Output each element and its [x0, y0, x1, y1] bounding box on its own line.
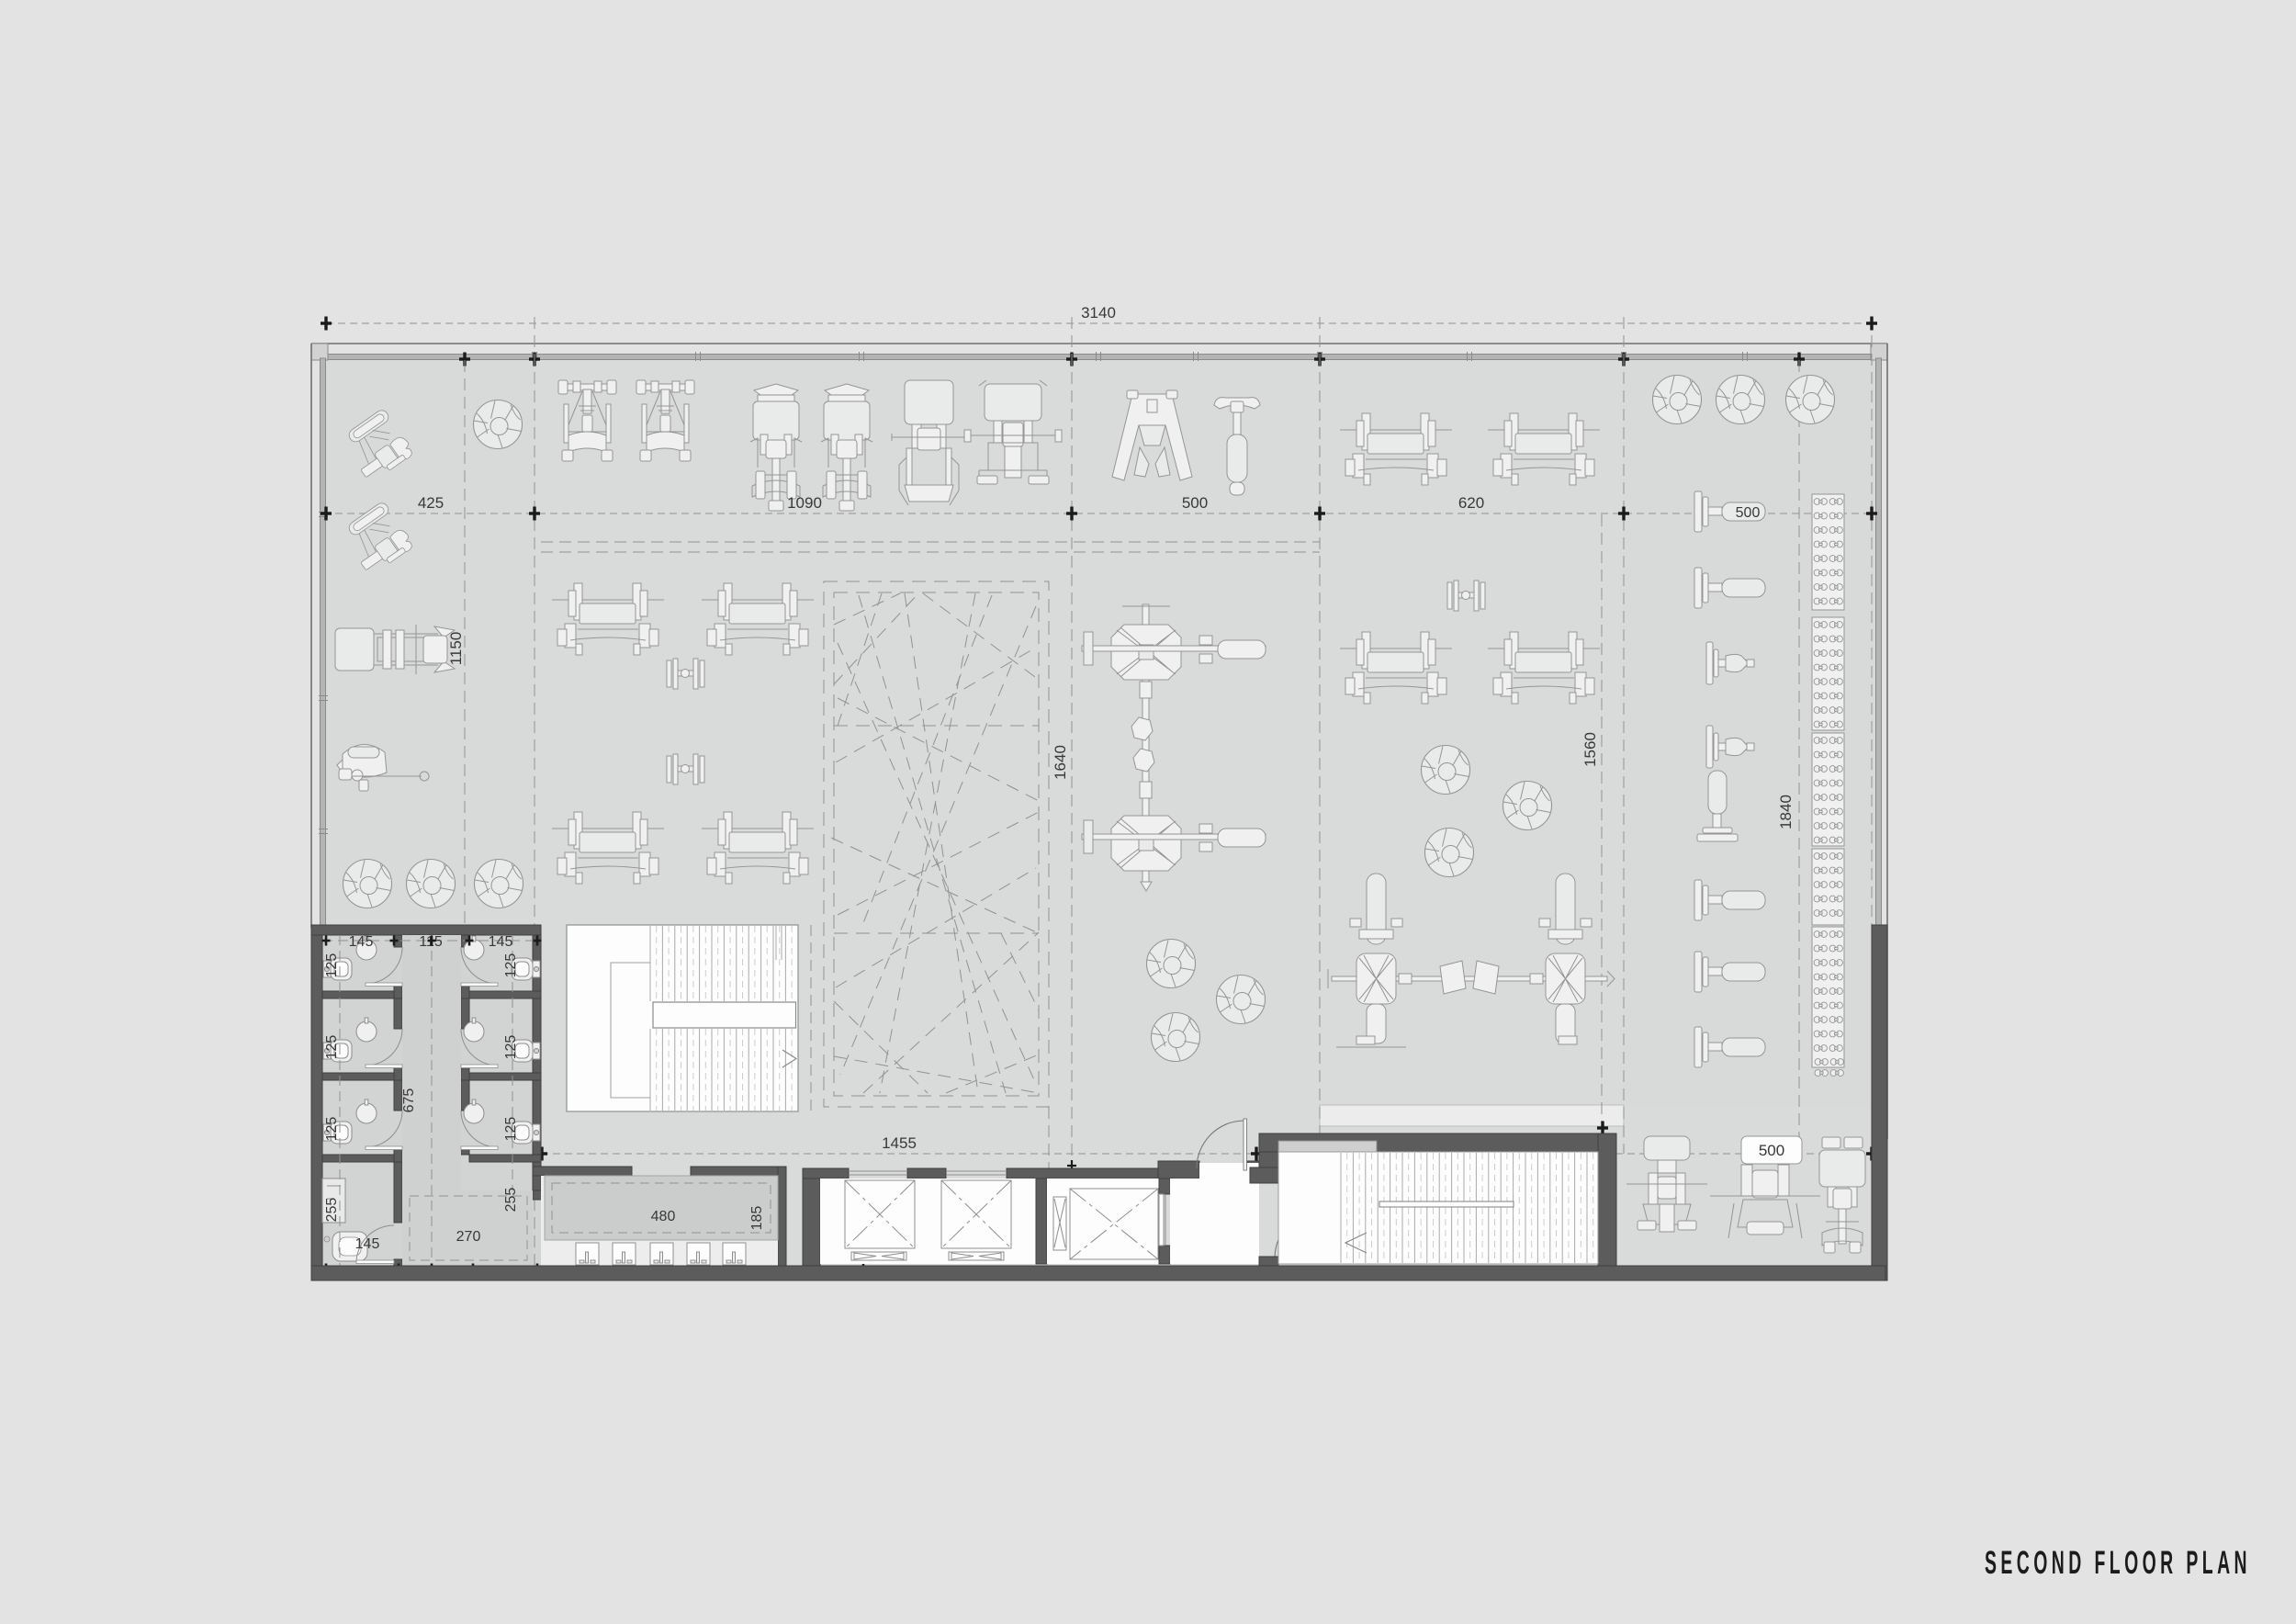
svg-text:125: 125 — [503, 1117, 519, 1142]
svg-text:125: 125 — [324, 953, 340, 978]
svg-text:1090: 1090 — [787, 494, 822, 512]
svg-text:125: 125 — [324, 1117, 340, 1142]
svg-text:1840: 1840 — [1777, 795, 1795, 829]
svg-text:185: 185 — [749, 1206, 765, 1231]
svg-text:1150: 1150 — [447, 632, 465, 666]
svg-text:145: 145 — [349, 934, 374, 950]
svg-text:1640: 1640 — [1052, 745, 1069, 780]
svg-text:425: 425 — [418, 494, 444, 512]
svg-text:500: 500 — [1736, 505, 1761, 521]
svg-text:SECOND FLOOR PLAN: SECOND FLOOR PLAN — [1985, 1545, 2251, 1581]
svg-text:145: 145 — [355, 1236, 380, 1252]
svg-text:1455: 1455 — [882, 1134, 917, 1152]
svg-text:270: 270 — [456, 1229, 481, 1245]
svg-text:255: 255 — [324, 1198, 340, 1223]
svg-text:3140: 3140 — [1081, 304, 1116, 321]
svg-text:620: 620 — [1458, 494, 1484, 512]
svg-text:675: 675 — [401, 1088, 417, 1113]
svg-text:125: 125 — [324, 1035, 340, 1060]
svg-text:125: 125 — [503, 1035, 519, 1060]
svg-text:145: 145 — [489, 934, 513, 950]
svg-text:500: 500 — [1182, 494, 1208, 512]
svg-text:125: 125 — [503, 953, 519, 978]
svg-text:1560: 1560 — [1581, 732, 1599, 767]
svg-text:255: 255 — [503, 1188, 519, 1212]
svg-text:500: 500 — [1759, 1142, 1784, 1159]
svg-text:480: 480 — [651, 1209, 676, 1224]
